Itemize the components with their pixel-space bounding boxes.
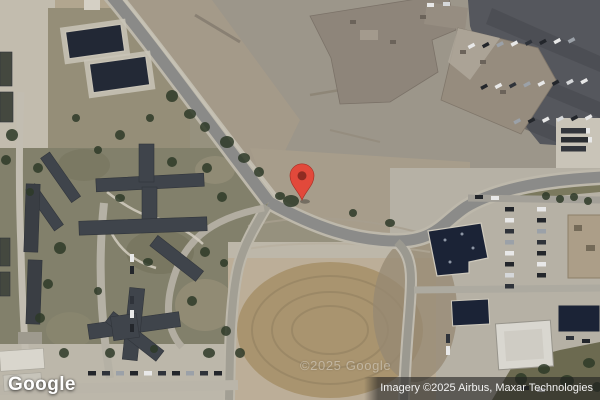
dirt-field (228, 218, 457, 400)
satellite-map[interactable]: ©2025 Google Google Imagery ©2025 Airbus… (0, 0, 600, 400)
marker-shadow (300, 199, 310, 203)
marker-inner-circle (298, 171, 307, 180)
google-logo[interactable]: Google (8, 374, 76, 396)
imagery-attribution: Imagery ©2025 Airbus, Maxar Technologies (364, 377, 600, 400)
satellite-imagery (0, 0, 600, 400)
